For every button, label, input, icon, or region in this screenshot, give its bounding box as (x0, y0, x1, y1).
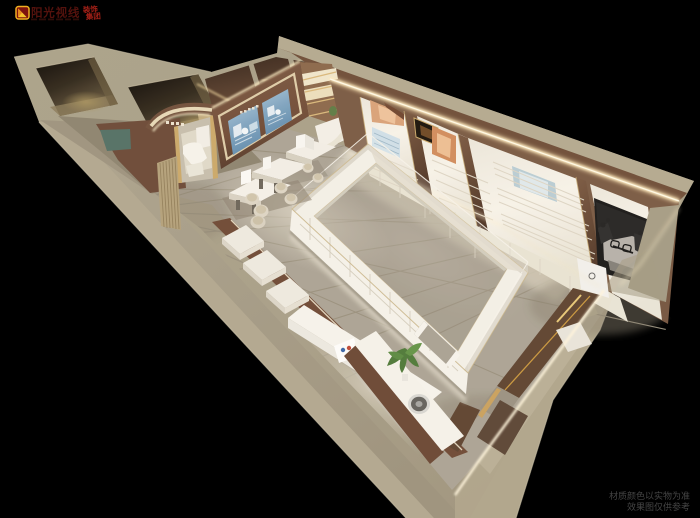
svg-text:集团: 集团 (84, 10, 101, 21)
svg-text:材质颜色以实物为准: 材质颜色以实物为准 (609, 490, 690, 501)
svg-text:效果图仅供参考: 效果图仅供参考 (627, 501, 690, 512)
svg-text:阳光视线: 阳光视线 (31, 6, 80, 20)
